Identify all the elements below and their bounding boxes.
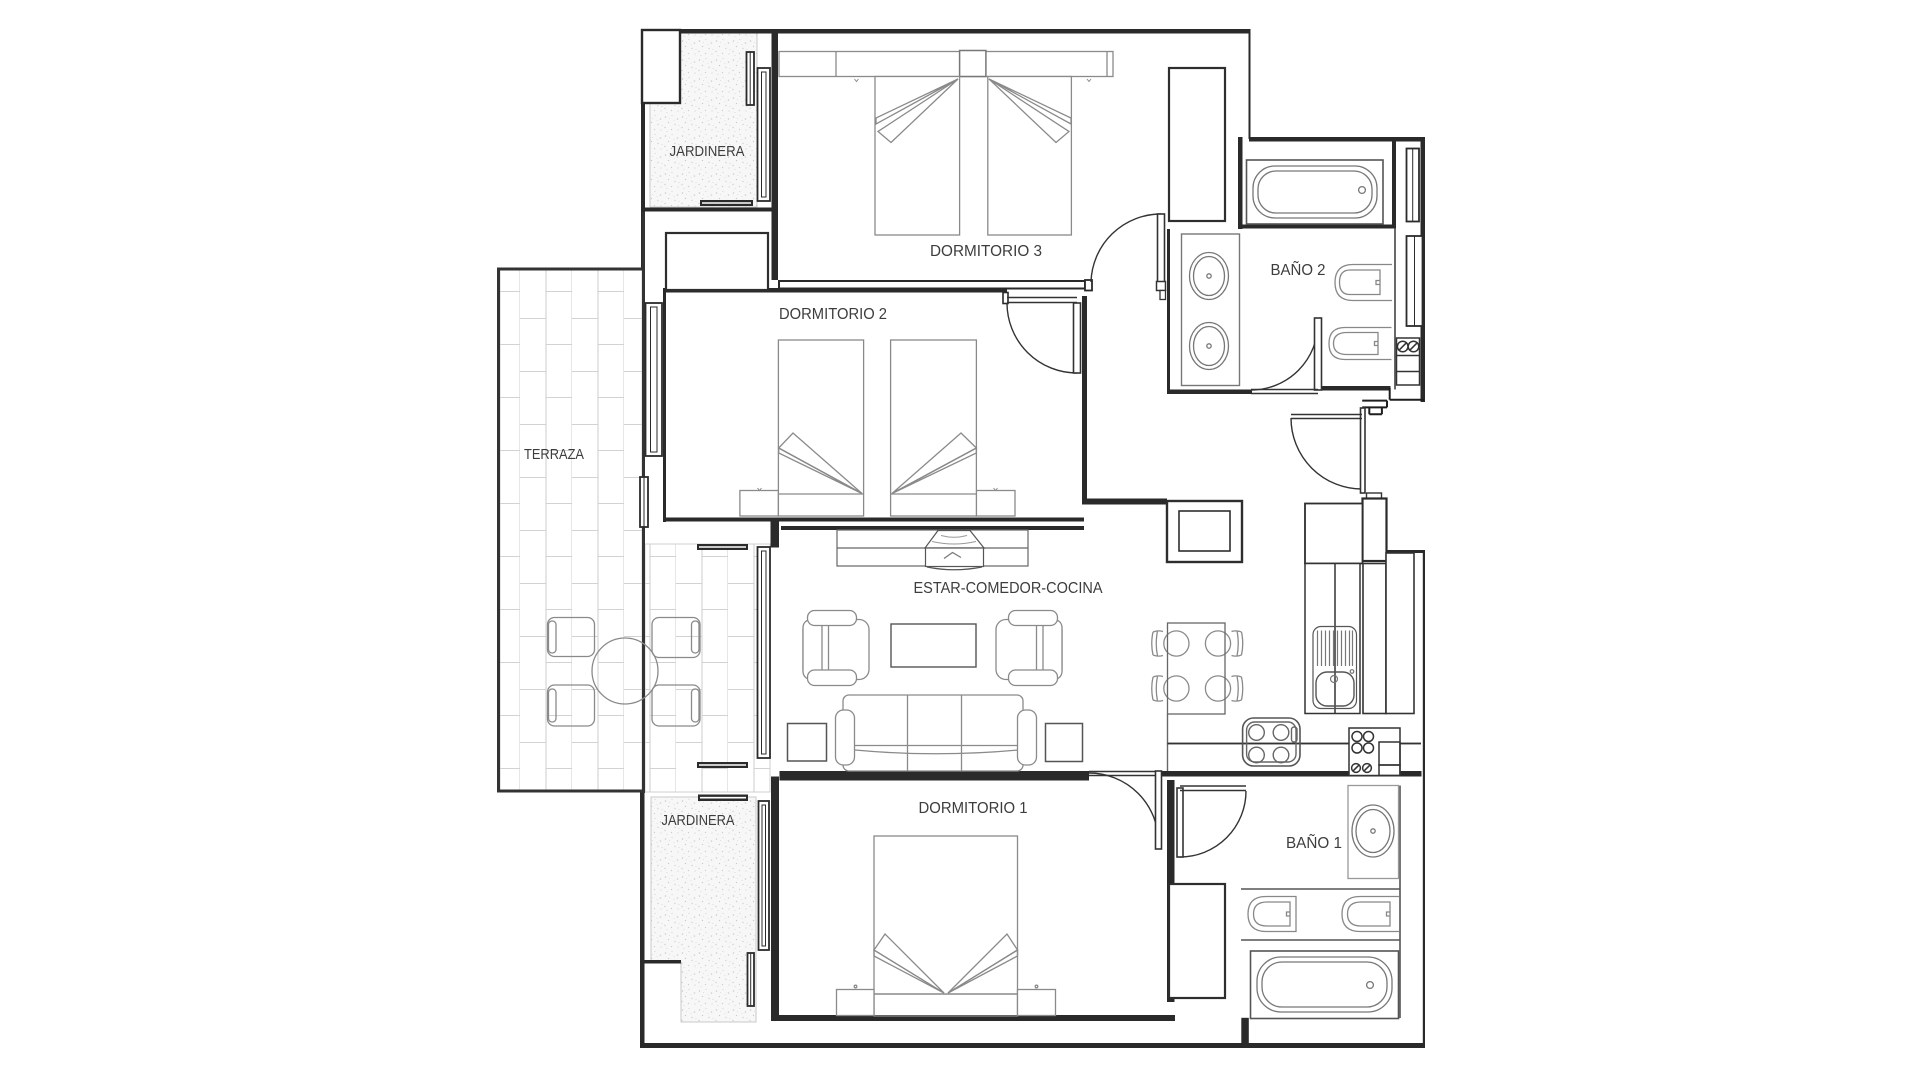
svg-text:DORMITORIO 3: DORMITORIO 3 — [930, 243, 1042, 260]
svg-text:DORMITORIO 1: DORMITORIO 1 — [919, 800, 1028, 817]
svg-text:JARDINERA: JARDINERA — [662, 812, 735, 829]
svg-text:TERRAZA: TERRAZA — [524, 446, 584, 463]
svg-text:BAÑO 2: BAÑO 2 — [1271, 259, 1326, 279]
svg-text:DORMITORIO 2: DORMITORIO 2 — [779, 306, 887, 323]
svg-text:BAÑO 1: BAÑO 1 — [1286, 832, 1342, 852]
svg-text:ESTAR-COMEDOR-COCINA: ESTAR-COMEDOR-COCINA — [914, 580, 1103, 597]
svg-text:JARDINERA: JARDINERA — [670, 143, 745, 160]
